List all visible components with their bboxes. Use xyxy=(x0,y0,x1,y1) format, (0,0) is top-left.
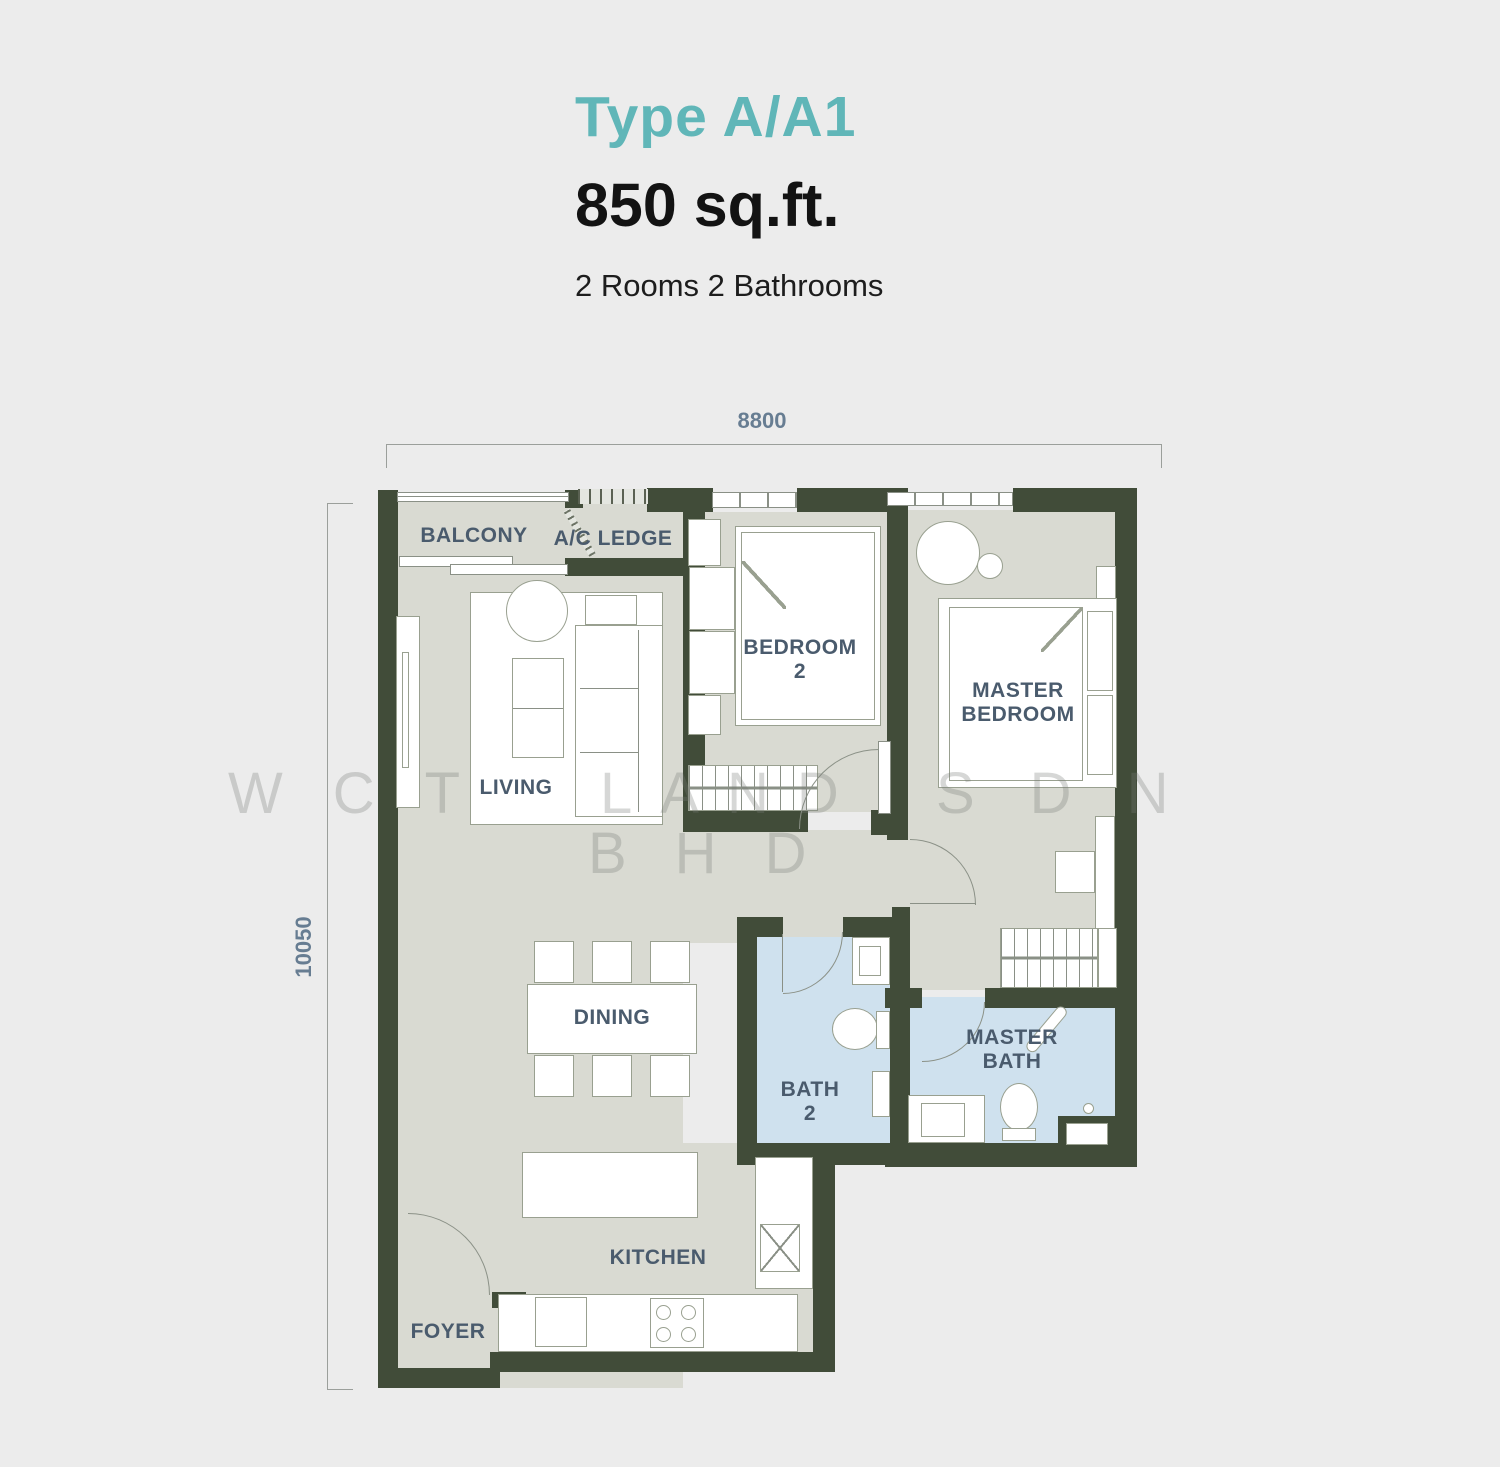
bath2-toilet-bowl xyxy=(832,1008,878,1050)
pillow xyxy=(1087,611,1113,691)
stove xyxy=(650,1298,704,1348)
watermark-text: SDN xyxy=(936,760,1223,827)
dining-chair xyxy=(534,941,574,983)
sofa-cushion-line xyxy=(580,752,638,753)
stove-burner xyxy=(681,1327,696,1342)
armchair xyxy=(506,580,568,642)
label-dining: DINING xyxy=(574,1006,651,1030)
bath2-toilet-tank xyxy=(876,1011,890,1049)
dimension-top: 8800 xyxy=(738,408,787,434)
label-bedroom2-line1: BEDROOM xyxy=(743,636,856,660)
label-bath2-line2: 2 xyxy=(781,1102,840,1126)
label-master-bedroom-line1: MASTER xyxy=(961,679,1074,703)
acledge-hatch xyxy=(578,489,648,504)
label-foyer: FOYER xyxy=(411,1320,486,1344)
master-bedroom-window xyxy=(887,492,1013,506)
wall-top-pier-2 xyxy=(797,488,887,512)
coffee-table xyxy=(512,658,564,758)
dining-chair xyxy=(592,941,632,983)
bedroom2-bed xyxy=(735,526,881,726)
balcony-railing xyxy=(397,492,569,502)
dining-chair xyxy=(592,1055,632,1097)
coffee-table-line xyxy=(513,708,563,709)
label-master-bath-line1: MASTER xyxy=(966,1026,1058,1050)
masterbath-vanity xyxy=(908,1095,985,1143)
watermark-text: BHD xyxy=(588,820,854,887)
stove-burner xyxy=(656,1327,671,1342)
wall-bath2-left xyxy=(737,917,757,1145)
unit-config: 2 Rooms 2 Bathrooms xyxy=(575,268,883,304)
unit-area: 850 sq.ft. xyxy=(575,170,839,240)
sofa-cushion-line xyxy=(580,688,638,689)
bedroom2-window xyxy=(712,492,797,508)
masterbath-toilet-tank xyxy=(1002,1128,1036,1141)
wall-bath2-right xyxy=(890,937,910,1143)
dimension-tick xyxy=(1161,444,1162,468)
pillow xyxy=(689,567,735,630)
kitchen-island xyxy=(522,1152,698,1218)
blanket-fold xyxy=(742,561,786,609)
label-master-bedroom: MASTER BEDROOM xyxy=(961,679,1074,727)
dimension-tick xyxy=(386,444,387,468)
stove-burner xyxy=(656,1305,671,1320)
wall-masterbath-top-right xyxy=(985,988,1137,1008)
desk-chair xyxy=(1055,851,1095,893)
wall-left xyxy=(378,490,398,1388)
wall-masterbath-top-left xyxy=(885,988,922,1008)
master-closet xyxy=(1000,928,1098,988)
dining-chair xyxy=(650,1055,690,1097)
wall-foyer-bottom xyxy=(378,1368,500,1388)
watermark-text: LAND xyxy=(600,760,867,827)
balcony-sliding-door-panel xyxy=(450,564,568,575)
wall-bath2-top-left xyxy=(757,917,783,937)
stool-small xyxy=(977,553,1003,579)
bath2-door-leaf xyxy=(782,934,783,992)
round-table xyxy=(916,521,980,585)
unit-type-title: Type A/A1 xyxy=(575,84,856,150)
bedroom2-door-leaf xyxy=(878,741,891,814)
label-kitchen: KITCHEN xyxy=(610,1246,707,1270)
label-master-bath-line2: BATH xyxy=(966,1050,1058,1074)
label-bath2: BATH 2 xyxy=(781,1078,840,1126)
master-closet-side xyxy=(1098,928,1117,988)
label-bedroom2-line2: 2 xyxy=(743,660,856,684)
fridge xyxy=(535,1297,587,1347)
dimension-left: 10050 xyxy=(291,916,317,977)
label-balcony: BALCONY xyxy=(420,524,527,548)
bath2-shelf xyxy=(872,1071,890,1117)
kitchen-sink xyxy=(760,1224,800,1272)
dining-chair xyxy=(534,1055,574,1097)
wall-right xyxy=(1115,488,1137,1167)
blanket-fold xyxy=(1041,608,1082,652)
label-bath2-line1: BATH xyxy=(781,1078,840,1102)
stove-burner xyxy=(681,1305,696,1320)
masterbath-toilet-bowl xyxy=(1000,1083,1038,1131)
wall-bath2-top-right xyxy=(843,917,905,937)
watermark-text: WCT xyxy=(228,760,510,827)
label-ac-ledge: A/C LEDGE xyxy=(554,527,673,551)
shower-tray xyxy=(1066,1123,1108,1145)
label-master-bedroom-line2: BEDROOM xyxy=(961,703,1074,727)
tv-screen xyxy=(402,652,409,768)
pillow xyxy=(689,631,735,694)
label-master-bath: MASTER BATH xyxy=(966,1026,1058,1074)
shower-head xyxy=(1083,1103,1094,1114)
dimension-tick xyxy=(327,1389,353,1390)
nightstand xyxy=(688,695,721,735)
bath2-basin xyxy=(859,946,881,976)
dimension-line-left xyxy=(327,503,328,1390)
label-bedroom2: BEDROOM 2 xyxy=(743,636,856,684)
wall-kitchen-right xyxy=(813,1160,835,1372)
desk xyxy=(1095,816,1115,930)
masterbath-basin xyxy=(921,1103,965,1137)
master-bedroom-door-leaf xyxy=(910,903,976,904)
floorplan-page: Type A/A1 850 sq.ft. 2 Rooms 2 Bathrooms… xyxy=(0,0,1500,1467)
bath2-sink xyxy=(852,937,890,985)
nightstand xyxy=(688,519,721,566)
wall-kitchen-bottom xyxy=(490,1352,835,1372)
wall-acledge-bottom xyxy=(565,558,685,576)
dining-chair xyxy=(650,941,690,983)
dimension-line-top xyxy=(386,444,1162,445)
side-table xyxy=(585,595,637,625)
dimension-tick xyxy=(327,503,353,504)
